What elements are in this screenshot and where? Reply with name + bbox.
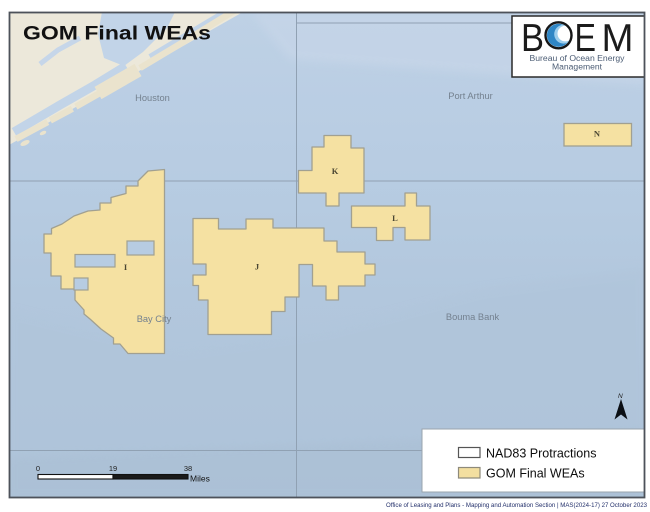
svg-text:L: L — [392, 213, 398, 223]
svg-text:38: 38 — [184, 464, 192, 473]
svg-text:Management: Management — [552, 63, 603, 72]
svg-text:19: 19 — [109, 464, 117, 473]
svg-text:N: N — [618, 393, 623, 400]
svg-text:GOM Final WEAs: GOM Final WEAs — [486, 467, 585, 481]
svg-text:Miles: Miles — [190, 474, 210, 484]
svg-text:Port Arthur: Port Arthur — [448, 91, 492, 101]
svg-text:GOM Final WEAs: GOM Final WEAs — [23, 24, 211, 45]
svg-text:Bay City: Bay City — [137, 314, 172, 324]
svg-text:Bouma Bank: Bouma Bank — [446, 312, 500, 322]
svg-text:0: 0 — [36, 464, 40, 473]
svg-text:K: K — [332, 166, 339, 176]
svg-text:N: N — [594, 129, 601, 139]
svg-text:Houston: Houston — [135, 93, 170, 103]
svg-text:NAD83 Protractions: NAD83 Protractions — [486, 447, 596, 461]
svg-text:Office of Leasing and Plans -: Office of Leasing and Plans - Mapping an… — [386, 502, 648, 509]
